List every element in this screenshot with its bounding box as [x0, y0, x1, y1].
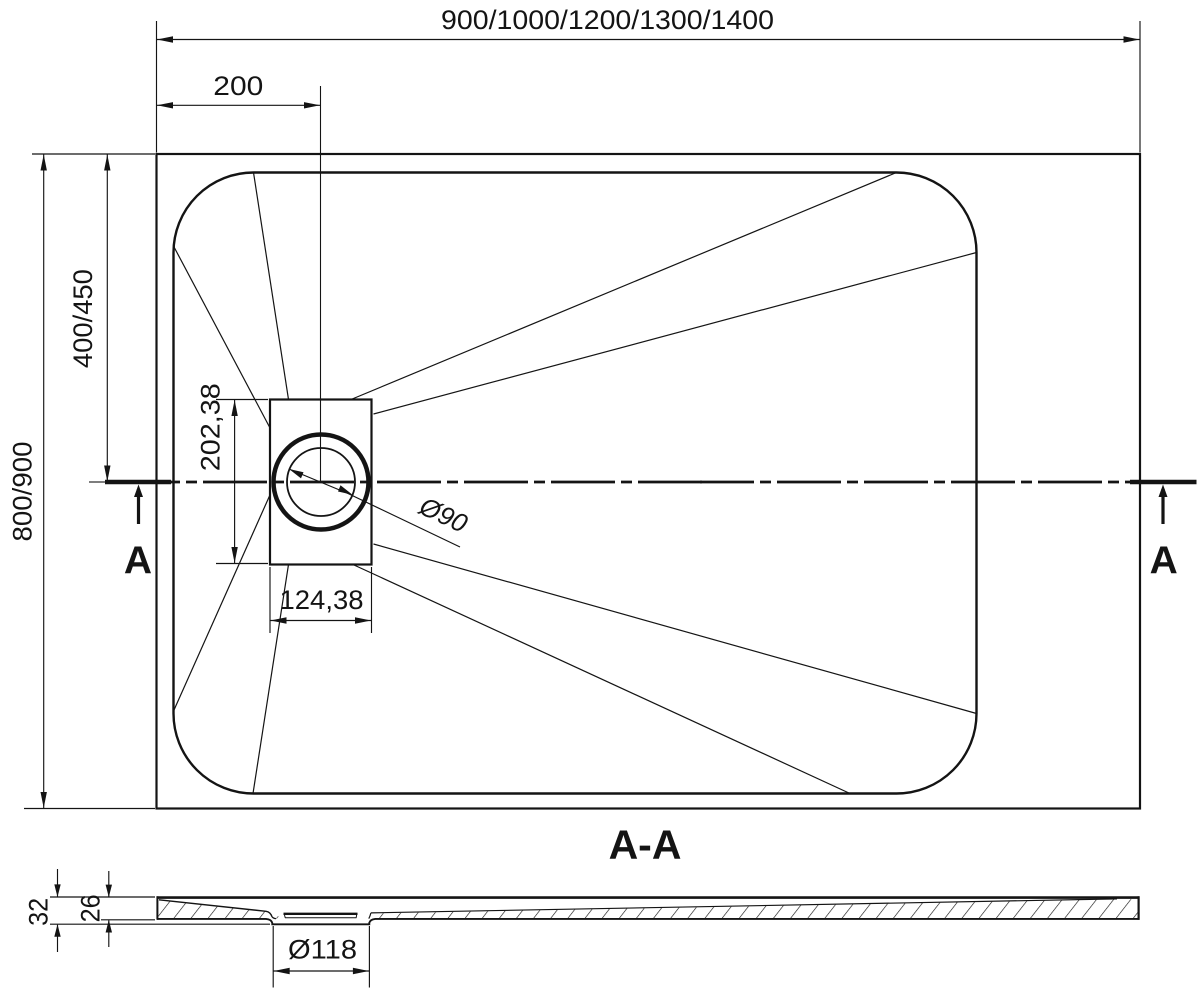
svg-text:A: A: [124, 540, 152, 583]
svg-text:400/450: 400/450: [68, 269, 98, 368]
svg-text:26: 26: [75, 894, 105, 922]
svg-text:200: 200: [213, 71, 263, 101]
svg-text:900/1000/1200/1300/1400: 900/1000/1200/1300/1400: [441, 5, 774, 35]
svg-text:32: 32: [23, 898, 53, 926]
svg-text:800/900: 800/900: [8, 442, 38, 542]
svg-text:Ø90: Ø90: [414, 490, 473, 539]
svg-text:202,38: 202,38: [196, 383, 226, 471]
svg-text:124,38: 124,38: [280, 585, 364, 615]
svg-text:A-A: A-A: [609, 822, 682, 868]
svg-text:Ø118: Ø118: [288, 935, 357, 965]
svg-text:A: A: [1150, 540, 1178, 583]
